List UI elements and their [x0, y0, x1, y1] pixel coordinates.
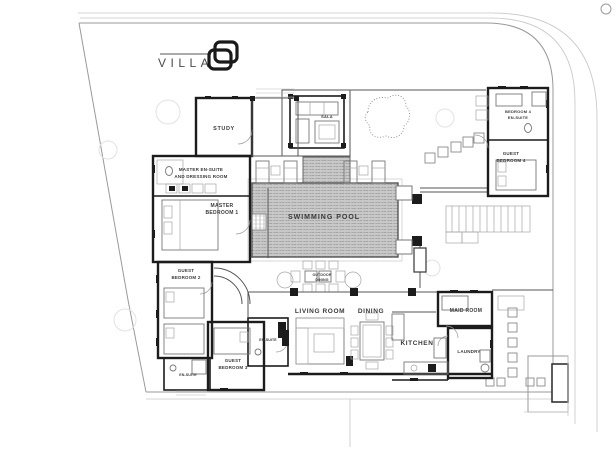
planter-icon: [277, 272, 293, 288]
label-sala: SALA: [321, 114, 333, 119]
stepping-stones-diagonal: [425, 133, 484, 163]
washer-icon: [480, 350, 490, 362]
room-guest-bedroom-4: [488, 88, 548, 196]
sala-pavilion: [282, 90, 350, 156]
shower-icon: [532, 92, 546, 106]
label-swimming-pool: SWIMMING POOL: [288, 214, 360, 221]
sink-icon: [411, 365, 417, 371]
label-guest-bedroom3-1: GUEST: [225, 358, 242, 363]
toilet-icon: [525, 124, 532, 133]
label-dining: DINING: [358, 308, 384, 315]
label-ensuite-b: EN-SUITE: [259, 338, 277, 342]
label-kitchen: KITCHEN: [400, 340, 433, 347]
shower-icon: [192, 360, 206, 374]
sofa-icon: [296, 318, 344, 364]
bed-icon: [496, 160, 536, 190]
washer-icon: [481, 364, 489, 372]
label-master-bedroom-2: BEDROOM 1: [206, 210, 239, 216]
floor-plan-drawing: STUDY MASTER EN-SUITE AND DRESSING ROOM …: [0, 0, 616, 451]
label-master-bedroom-1: MASTER: [211, 203, 234, 209]
label-bedroom4-ensuite-1: BEDROOM 4: [505, 109, 532, 114]
dining-table-icon: [360, 322, 384, 360]
stove-icon: [428, 364, 436, 372]
sink-icon: [170, 365, 176, 371]
stepping-stones-right: [486, 308, 545, 386]
label-bedroom4-ensuite-2: EN-SUITE: [508, 115, 528, 120]
logo-text: VILLA: [158, 56, 213, 70]
label-guest-bedroom4-1: GUEST: [503, 151, 520, 156]
villa-logo: VILLA: [158, 42, 237, 70]
sink-icon: [255, 349, 261, 355]
label-outdoor-dining-2: DINING: [315, 278, 328, 282]
label-guest-bedroom2-1: GUEST: [178, 268, 195, 273]
label-maid-room: MAID ROOM: [450, 308, 482, 314]
label-guest-bedroom4-2: BEDROOM 4: [496, 158, 525, 163]
planter-icon: [345, 272, 361, 288]
kitchen-island: [434, 338, 446, 358]
kitchen-counter: [404, 362, 448, 374]
label-study: STUDY: [213, 126, 235, 132]
label-guest-bedroom3-2: BEDROOM 3: [218, 365, 247, 370]
label-living-room: LIVING ROOM: [295, 308, 345, 315]
label-outdoor-dining-1: OUTDOOR: [312, 273, 331, 277]
kitchen-counter: [392, 314, 404, 340]
pergola: [446, 206, 530, 243]
bathtub-icon: [496, 94, 522, 106]
pond: [365, 95, 409, 137]
survey-marker-icon: [601, 4, 611, 14]
label-laundry: LAUNDRY: [457, 349, 480, 354]
swimming-pool: [248, 157, 412, 261]
bed-icon: [164, 324, 204, 354]
floor-plan-page: STUDY MASTER EN-SUITE AND DRESSING ROOM …: [0, 0, 616, 451]
label-master-ensuite-1: MASTER EN-SUITE: [179, 167, 223, 172]
toilet-icon: [166, 167, 173, 176]
room-guest-bedroom-3: [208, 322, 264, 390]
label-ensuite-a: EN-SUITE: [179, 373, 197, 377]
label-guest-bedroom2-2: BEDROOM 2: [171, 275, 200, 280]
bed-icon: [164, 288, 204, 318]
label-master-ensuite-2: AND DRESSING ROOM: [174, 174, 227, 179]
